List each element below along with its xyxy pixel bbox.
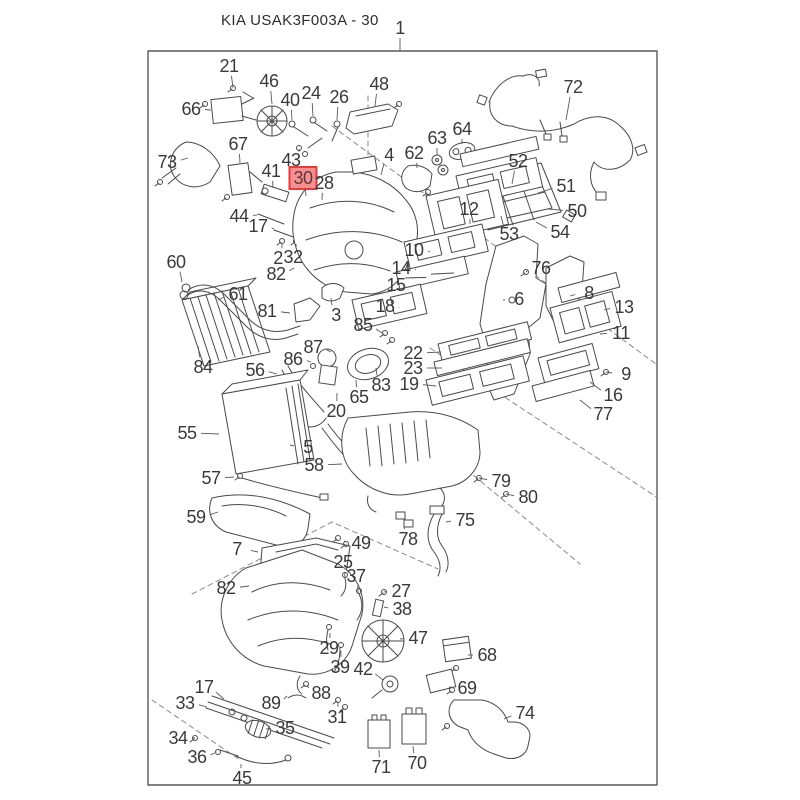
part-callout-29: 29: [319, 639, 338, 657]
part-callout-17: 17: [194, 678, 213, 696]
part-callout-58: 58: [304, 456, 323, 474]
part-callout-32: 32: [283, 248, 302, 266]
part-callout-4: 4: [384, 146, 394, 164]
part-callout-46: 46: [259, 72, 278, 90]
part-callout-18: 18: [375, 297, 394, 315]
part-callout-8: 8: [584, 284, 594, 302]
part-callout-27: 27: [391, 582, 410, 600]
part-callout-87: 87: [303, 338, 322, 356]
part-callout-68: 68: [477, 646, 496, 664]
part-callout-47: 47: [408, 629, 427, 647]
part-callout-24: 24: [301, 84, 320, 102]
part-callout-35: 35: [275, 719, 294, 737]
part-callout-44: 44: [229, 207, 248, 225]
part-callout-31: 31: [327, 708, 346, 726]
part-callout-28: 28: [314, 174, 333, 192]
part-callout-89: 89: [261, 694, 280, 712]
part-callout-62: 62: [404, 144, 423, 162]
part-callout-39: 39: [330, 658, 349, 676]
part-callout-50: 50: [567, 202, 586, 220]
part-callout-60: 60: [166, 253, 185, 271]
part-callout-12: 12: [459, 200, 478, 218]
part-callout-83: 83: [371, 376, 390, 394]
part-callout-19: 19: [399, 375, 418, 393]
part-callout-7: 7: [232, 540, 242, 558]
part-callout-34: 34: [168, 729, 187, 747]
part-callout-86: 86: [283, 350, 302, 368]
part-callout-56: 56: [245, 361, 264, 379]
part-callout-37: 37: [346, 567, 365, 585]
part-callout-79: 79: [491, 472, 510, 490]
part-callout-33: 33: [175, 694, 194, 712]
part-callout-80: 80: [518, 488, 537, 506]
parts-diagram-page: KIA USAK3F003A - 30: [0, 0, 800, 800]
part-callout-52: 52: [508, 152, 527, 170]
part-callout-41: 41: [261, 162, 280, 180]
part-callout-30-highlighted: 30: [288, 166, 317, 190]
part-callout-67: 67: [228, 135, 247, 153]
part-callout-16: 16: [603, 386, 622, 404]
part-callout-82: 82: [266, 265, 285, 283]
part-callout-48: 48: [369, 75, 388, 93]
part-callout-42: 42: [353, 660, 372, 678]
part-callout-38: 38: [392, 600, 411, 618]
part-callout-3: 3: [331, 306, 341, 324]
part-callout-71: 71: [371, 758, 390, 776]
part-callout-82: 82: [216, 579, 235, 597]
part-callout-73: 73: [157, 153, 176, 171]
part-callout-11: 11: [612, 324, 630, 342]
part-callout-10: 10: [404, 241, 423, 259]
part-callout-59: 59: [186, 508, 205, 526]
part-callout-5: 5: [303, 438, 313, 456]
part-callout-6: 6: [514, 290, 524, 308]
part-callout-54: 54: [550, 223, 569, 241]
part-callout-15: 15: [386, 276, 405, 294]
part-callout-66: 66: [181, 100, 200, 118]
part-callout-85: 85: [353, 316, 372, 334]
part-callout-70: 70: [407, 754, 426, 772]
part-callout-63: 63: [427, 129, 446, 147]
part-callout-61: 61: [228, 285, 247, 303]
part-callout-36: 36: [187, 748, 206, 766]
part-callout-69: 69: [457, 679, 476, 697]
part-callout-13: 13: [614, 298, 633, 316]
callout-leader-lines: [0, 0, 800, 800]
part-callout-57: 57: [201, 469, 220, 487]
part-callout-65: 65: [349, 388, 368, 406]
part-callout-77: 77: [593, 405, 612, 423]
part-callout-49: 49: [351, 534, 370, 552]
part-callout-40: 40: [280, 91, 299, 109]
part-callout-53: 53: [499, 225, 518, 243]
part-callout-21: 21: [219, 57, 238, 75]
part-callout-74: 74: [515, 704, 534, 722]
part-callout-81: 81: [257, 302, 276, 320]
part-callout-9: 9: [621, 365, 631, 383]
part-callout-45: 45: [232, 769, 251, 787]
part-callout-17: 17: [248, 217, 267, 235]
part-callout-1: 1: [395, 19, 405, 37]
part-callout-55: 55: [177, 424, 196, 442]
part-callout-51: 51: [556, 177, 575, 195]
part-callout-72: 72: [563, 78, 582, 96]
part-callout-78: 78: [398, 530, 417, 548]
part-callout-76: 76: [531, 259, 550, 277]
part-callout-64: 64: [452, 120, 471, 138]
part-callout-26: 26: [329, 88, 348, 106]
part-callout-20: 20: [326, 402, 345, 420]
part-callout-75: 75: [455, 511, 474, 529]
part-callout-84: 84: [193, 358, 212, 376]
part-callout-88: 88: [311, 684, 330, 702]
